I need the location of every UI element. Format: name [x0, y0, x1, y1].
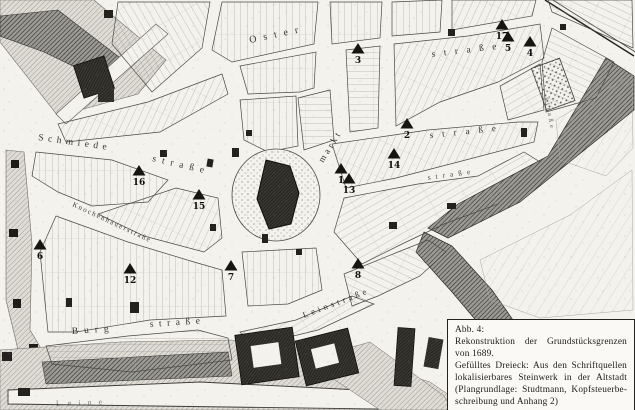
scanned-map-figure: OsterstraßeSchmiedestraßemarktstraßestra…: [0, 0, 635, 410]
marker-number: 2: [404, 131, 410, 141]
marker-number: 17: [496, 32, 509, 42]
marker-number: 12: [124, 276, 137, 286]
marker-number: 15: [193, 202, 206, 212]
marker-number: 5: [505, 44, 511, 54]
marker-number: 6: [37, 252, 43, 262]
marker-number: 13: [343, 186, 356, 196]
marker-number: 16: [133, 178, 146, 188]
marker-number: 3: [355, 56, 361, 66]
marker-number: 4: [527, 49, 533, 59]
marker-number: 14: [388, 161, 401, 171]
marker-number: 1: [338, 176, 344, 186]
figure-caption-box: Abb. 4: Rekonstruktion der Grundstücksgr…: [447, 319, 635, 410]
marker-number: 7: [228, 273, 234, 283]
figure-title: Rekonstruktion der Grundstücksgrenzen vo…: [455, 336, 627, 360]
figure-label: Abb. 4:: [455, 324, 627, 336]
figure-legend: Gefülltes Dreieck: Aus den Schriftquelle…: [455, 360, 627, 408]
marker-number: 8: [355, 271, 361, 281]
street-label-leine: Leine: [56, 397, 110, 408]
